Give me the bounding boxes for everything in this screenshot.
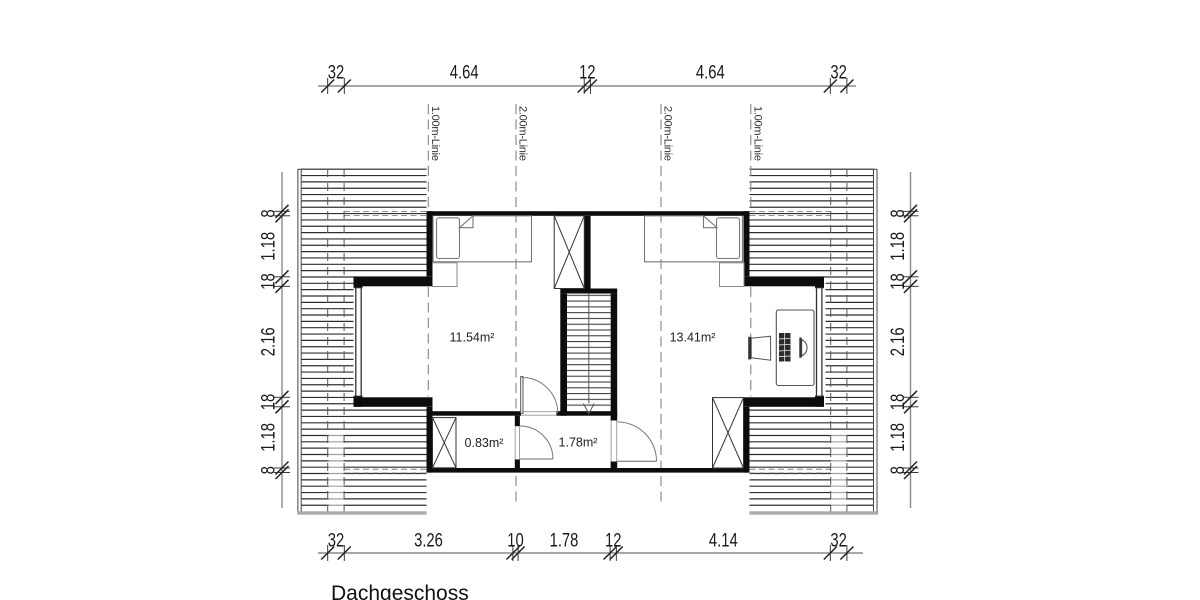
svg-text:18: 18	[258, 273, 279, 289]
svg-text:11.54m²: 11.54m²	[450, 331, 495, 345]
svg-text:1.00m-Linie: 1.00m-Linie	[429, 106, 441, 161]
svg-text:18: 18	[887, 273, 908, 289]
svg-text:12: 12	[579, 62, 595, 83]
svg-text:1.18: 1.18	[258, 423, 279, 452]
svg-text:2.16: 2.16	[258, 327, 279, 356]
svg-text:18: 18	[887, 394, 908, 410]
svg-text:4.14: 4.14	[709, 530, 738, 551]
svg-text:32: 32	[328, 62, 344, 83]
svg-text:1.18: 1.18	[887, 232, 908, 261]
svg-text:32: 32	[328, 530, 344, 551]
svg-text:1.78m²: 1.78m²	[559, 436, 598, 450]
svg-text:1.00m-Linie: 1.00m-Linie	[751, 106, 763, 161]
svg-text:12: 12	[605, 530, 621, 551]
svg-text:32: 32	[830, 530, 846, 551]
svg-text:10: 10	[507, 530, 523, 551]
svg-text:2.00m-Linie: 2.00m-Linie	[517, 106, 529, 161]
svg-text:8: 8	[258, 209, 279, 217]
svg-text:13.41m²: 13.41m²	[670, 331, 716, 345]
svg-text:18: 18	[258, 394, 279, 410]
svg-text:1.18: 1.18	[258, 232, 279, 261]
svg-text:2.16: 2.16	[887, 327, 908, 356]
svg-text:8: 8	[887, 209, 908, 217]
svg-text:1.18: 1.18	[887, 423, 908, 452]
svg-text:1.78: 1.78	[550, 530, 579, 551]
svg-text:8: 8	[258, 466, 279, 474]
svg-text:3.26: 3.26	[414, 530, 443, 551]
svg-text:4.64: 4.64	[450, 62, 479, 83]
svg-text:2.00m-Linie: 2.00m-Linie	[662, 106, 674, 161]
svg-text:Dachgeschoss: Dachgeschoss	[331, 582, 469, 600]
svg-text:32: 32	[830, 62, 846, 83]
svg-text:8: 8	[887, 466, 908, 474]
svg-text:4.64: 4.64	[696, 62, 725, 83]
svg-text:0.83m²: 0.83m²	[465, 436, 504, 450]
